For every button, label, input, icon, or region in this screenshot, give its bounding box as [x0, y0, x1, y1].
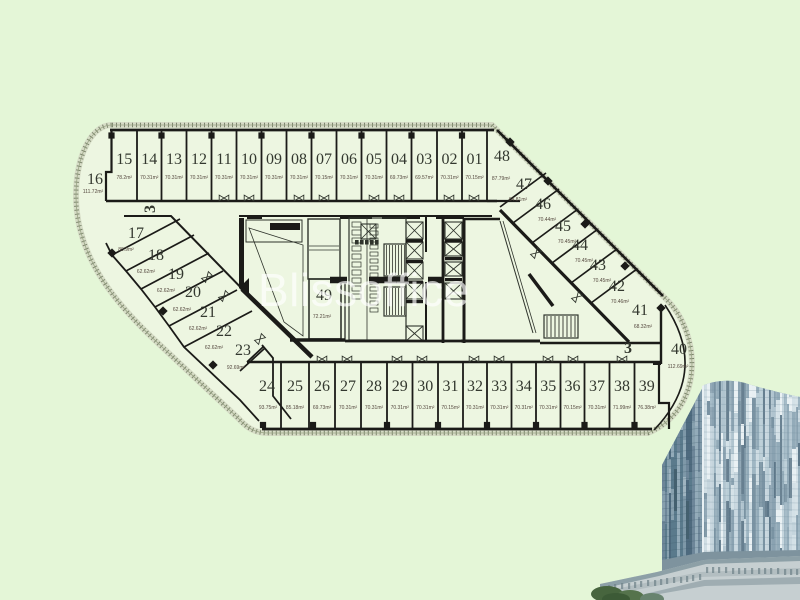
- svg-text:64.81m²: 64.81m²: [509, 197, 528, 203]
- svg-text:87.79m²: 87.79m²: [492, 176, 511, 182]
- svg-text:18: 18: [148, 247, 164, 264]
- svg-text:09: 09: [266, 151, 282, 168]
- svg-text:62.62m²: 62.62m²: [173, 307, 192, 313]
- svg-text:47: 47: [516, 176, 532, 193]
- svg-text:70.31m²: 70.31m²: [265, 175, 284, 181]
- svg-text:70.31m²: 70.31m²: [440, 175, 459, 181]
- svg-text:45: 45: [555, 218, 571, 235]
- svg-text:19: 19: [168, 266, 184, 283]
- svg-text:39: 39: [639, 378, 655, 395]
- svg-text:11: 11: [216, 151, 231, 168]
- svg-text:20: 20: [185, 284, 201, 301]
- svg-text:62.62m²: 62.62m²: [205, 345, 224, 351]
- svg-text:28: 28: [366, 378, 382, 395]
- svg-text:17: 17: [128, 225, 144, 242]
- svg-text:06: 06: [341, 151, 357, 168]
- svg-text:25: 25: [287, 378, 303, 395]
- svg-text:70.31m²: 70.31m²: [391, 405, 410, 411]
- svg-text:69.73m²: 69.73m²: [390, 175, 409, 181]
- svg-text:44: 44: [572, 237, 588, 254]
- svg-text:70.15m²: 70.15m²: [441, 405, 460, 411]
- svg-text:13: 13: [166, 151, 182, 168]
- svg-text:3: 3: [624, 340, 632, 357]
- svg-text:93.75m²: 93.75m²: [259, 405, 278, 411]
- svg-text:33: 33: [491, 378, 507, 395]
- svg-text:22: 22: [216, 323, 232, 340]
- svg-text:71.99m²: 71.99m²: [613, 405, 632, 411]
- svg-text:04: 04: [391, 151, 407, 168]
- svg-text:70.31m²: 70.31m²: [588, 405, 607, 411]
- svg-text:70.31m²: 70.31m²: [215, 175, 234, 181]
- svg-text:70.31m²: 70.31m²: [140, 175, 159, 181]
- svg-text:02: 02: [442, 151, 458, 168]
- svg-text:34: 34: [516, 378, 532, 395]
- svg-text:38: 38: [614, 378, 630, 395]
- svg-text:70.15m²: 70.15m²: [465, 175, 484, 181]
- svg-text:70.31m²: 70.31m²: [365, 175, 384, 181]
- svg-text:41: 41: [632, 302, 648, 319]
- svg-text:01: 01: [467, 151, 483, 168]
- svg-text:80.9m²: 80.9m²: [118, 247, 134, 253]
- svg-text:76.38m²: 76.38m²: [638, 405, 657, 411]
- svg-text:68.32m²: 68.32m²: [634, 324, 653, 330]
- svg-text:10: 10: [241, 151, 257, 168]
- svg-text:70.31m²: 70.31m²: [290, 175, 309, 181]
- svg-text:32: 32: [467, 378, 483, 395]
- svg-text:78.2m²: 78.2m²: [116, 175, 132, 181]
- svg-text:26: 26: [314, 378, 330, 395]
- svg-text:27: 27: [340, 378, 356, 395]
- svg-text:62.62m²: 62.62m²: [137, 269, 156, 275]
- svg-text:70.31m²: 70.31m²: [339, 405, 358, 411]
- svg-text:70.15m²: 70.15m²: [315, 175, 334, 181]
- svg-text:69.73m²: 69.73m²: [313, 405, 332, 411]
- svg-text:70.15m²: 70.15m²: [563, 405, 582, 411]
- svg-text:70.31m²: 70.31m²: [416, 405, 435, 411]
- svg-text:29: 29: [392, 378, 408, 395]
- svg-text:07: 07: [316, 151, 332, 168]
- svg-text:70.31m²: 70.31m²: [240, 175, 259, 181]
- svg-text:35: 35: [540, 378, 556, 395]
- svg-text:85.18m²: 85.18m²: [286, 405, 305, 411]
- svg-text:70.46m²: 70.46m²: [611, 299, 630, 305]
- svg-text:37: 37: [589, 378, 605, 395]
- svg-text:70.31m²: 70.31m²: [539, 405, 558, 411]
- svg-text:12: 12: [191, 151, 207, 168]
- svg-text:31: 31: [443, 378, 459, 395]
- svg-text:16: 16: [87, 171, 103, 188]
- svg-text:70.31m²: 70.31m²: [490, 405, 509, 411]
- svg-text:62.62m²: 62.62m²: [157, 288, 176, 294]
- svg-text:70.31m²: 70.31m²: [165, 175, 184, 181]
- svg-text:40: 40: [671, 341, 687, 358]
- svg-text:70.31m²: 70.31m²: [365, 405, 384, 411]
- svg-text:70.31m²: 70.31m²: [515, 405, 534, 411]
- svg-text:70.44m²: 70.44m²: [538, 217, 557, 223]
- svg-text:48: 48: [494, 148, 510, 165]
- svg-text:70.31m²: 70.31m²: [340, 175, 359, 181]
- svg-text:46: 46: [535, 196, 551, 213]
- svg-text:92.69m²: 92.69m²: [227, 365, 246, 371]
- svg-text:112.69m²: 112.69m²: [668, 364, 689, 370]
- svg-text:3: 3: [142, 205, 159, 213]
- svg-text:62.62m²: 62.62m²: [189, 326, 208, 332]
- svg-text:70.31m²: 70.31m²: [190, 175, 209, 181]
- svg-text:111.72m²: 111.72m²: [83, 189, 104, 195]
- svg-text:70.31m²: 70.31m²: [466, 405, 485, 411]
- svg-text:21: 21: [200, 304, 216, 321]
- svg-text:23: 23: [235, 342, 251, 359]
- svg-text:03: 03: [416, 151, 432, 168]
- svg-text:42: 42: [609, 278, 625, 295]
- svg-text:08: 08: [291, 151, 307, 168]
- svg-text:30: 30: [417, 378, 433, 395]
- svg-text:Blissoffice: Blissoffice: [258, 264, 470, 316]
- svg-text:05: 05: [366, 151, 382, 168]
- svg-text:24: 24: [259, 378, 275, 395]
- svg-text:43: 43: [590, 257, 606, 274]
- svg-text:36: 36: [565, 378, 581, 395]
- svg-text:69.57m²: 69.57m²: [415, 175, 434, 181]
- svg-text:15: 15: [116, 151, 132, 168]
- svg-text:14: 14: [141, 151, 157, 168]
